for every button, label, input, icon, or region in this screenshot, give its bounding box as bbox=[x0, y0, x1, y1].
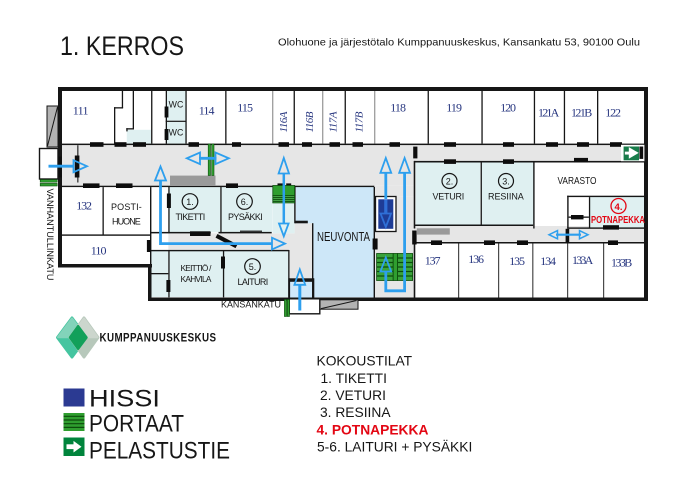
svg-text:2. VETURI: 2. VETURI bbox=[320, 388, 386, 403]
svg-text:VARASTO: VARASTO bbox=[558, 175, 597, 187]
svg-text:HUONE: HUONE bbox=[112, 217, 141, 227]
svg-text:133A: 133A bbox=[572, 253, 594, 267]
svg-text:KOKOUSTILAT: KOKOUSTILAT bbox=[317, 354, 413, 369]
svg-text:117B: 117B bbox=[354, 111, 366, 132]
svg-text:KEITTIÖ /: KEITTIÖ / bbox=[181, 263, 213, 273]
svg-text:1. KERROS: 1. KERROS bbox=[60, 31, 184, 61]
svg-text:116B: 116B bbox=[304, 111, 316, 132]
svg-text:KUMPPANUUSKESKUS: KUMPPANUUSKESKUS bbox=[100, 332, 217, 345]
svg-text:134: 134 bbox=[540, 254, 556, 268]
svg-text:WC: WC bbox=[169, 100, 184, 110]
svg-text:118: 118 bbox=[390, 101, 406, 115]
svg-text:3. RESIINA: 3. RESIINA bbox=[320, 405, 391, 420]
svg-text:110: 110 bbox=[91, 244, 107, 258]
svg-text:120: 120 bbox=[500, 101, 516, 115]
svg-text:1. TIKETTI: 1. TIKETTI bbox=[321, 371, 387, 386]
svg-text:136: 136 bbox=[468, 252, 484, 266]
svg-text:2.: 2. bbox=[446, 177, 454, 187]
svg-text:PELASTUSTIE: PELASTUSTIE bbox=[89, 438, 230, 465]
svg-text:119: 119 bbox=[446, 101, 462, 115]
svg-text:115: 115 bbox=[237, 101, 253, 115]
svg-text:122: 122 bbox=[605, 106, 621, 120]
svg-text:135: 135 bbox=[509, 254, 525, 268]
svg-text:LAITURI: LAITURI bbox=[238, 277, 269, 287]
svg-text:1.: 1. bbox=[186, 197, 194, 207]
svg-text:PORTAAT: PORTAAT bbox=[89, 411, 184, 438]
svg-text:TIKETTI: TIKETTI bbox=[176, 212, 206, 222]
svg-text:4. POTNAPEKKA: 4. POTNAPEKKA bbox=[317, 423, 429, 438]
svg-text:NEUVONTA: NEUVONTA bbox=[317, 230, 371, 244]
svg-text:132: 132 bbox=[76, 199, 92, 213]
svg-text:137: 137 bbox=[425, 254, 441, 268]
svg-text:VETURI: VETURI bbox=[433, 191, 465, 201]
svg-text:POSTI-: POSTI- bbox=[111, 202, 142, 212]
svg-text:KAHVILA: KAHVILA bbox=[181, 274, 212, 284]
svg-text:HISSI: HISSI bbox=[89, 386, 160, 413]
svg-text:117A: 117A bbox=[328, 111, 340, 132]
svg-text:133B: 133B bbox=[611, 256, 632, 270]
svg-text:RESIINA: RESIINA bbox=[488, 191, 524, 201]
svg-text:116A: 116A bbox=[278, 111, 290, 132]
svg-text:4.: 4. bbox=[615, 202, 623, 213]
svg-text:5.: 5. bbox=[249, 262, 257, 272]
svg-text:PYSÄKKI: PYSÄKKI bbox=[228, 212, 263, 222]
svg-text:121B: 121B bbox=[571, 106, 592, 120]
svg-text:WC: WC bbox=[169, 128, 184, 138]
svg-text:5-6. LAITURI + PYSÄKKI: 5-6. LAITURI + PYSÄKKI bbox=[317, 439, 472, 455]
svg-text:3.: 3. bbox=[502, 177, 510, 187]
svg-text:VANHANTULLINKATU: VANHANTULLINKATU bbox=[45, 189, 55, 281]
svg-text:POTNAPEKKA: POTNAPEKKA bbox=[591, 215, 645, 226]
svg-text:Olohuone ja järjestötalo Kumpp: Olohuone ja järjestötalo Kumppanuuskesku… bbox=[278, 37, 640, 49]
svg-text:121A: 121A bbox=[538, 106, 560, 120]
svg-text:KANSANKATU: KANSANKATU bbox=[221, 299, 281, 310]
svg-text:114: 114 bbox=[199, 104, 215, 118]
svg-text:111: 111 bbox=[73, 104, 89, 118]
svg-text:6.: 6. bbox=[241, 197, 249, 207]
